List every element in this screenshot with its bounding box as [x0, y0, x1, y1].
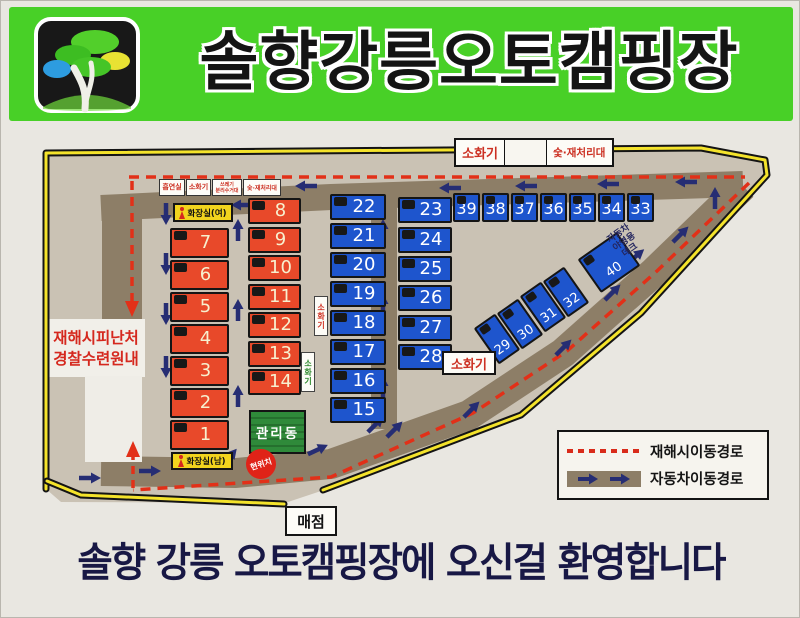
person-icon [178, 455, 184, 467]
map-canvas [1, 1, 800, 618]
arrow-right-icon [609, 473, 631, 485]
management-building: 관리동 [249, 410, 306, 454]
charcoal-disposal-label-small: 숯·재처리대 [243, 179, 281, 196]
legend-car-label: 자동차이동경로 [650, 468, 743, 489]
fire-extinguisher-label-top: 소화기 [456, 140, 505, 165]
fire-extinguisher-label-small: 소화기 [186, 179, 211, 196]
disaster-shelter-label: 재해시피난처 경찰수련원내 [47, 323, 145, 375]
evac-route-sample [567, 449, 641, 453]
blank-cell [505, 140, 545, 165]
recycling-label: 쓰레기 분리수거대 [212, 179, 242, 196]
female-toilet-label: 화장실(여) [173, 203, 233, 222]
camping-map-poster: { "header": { "title": "솔향강릉오토캠핑장" }, "w… [0, 0, 800, 618]
charcoal-disposal-label-top: 숯·재처리대 [546, 140, 612, 165]
legend-evacuation-row: 재해시이동경로 [567, 441, 759, 462]
male-toilet-label: 화장실(남) [171, 452, 233, 470]
fire-charcoal-sign-top: 소화기 숯·재처리대 [454, 138, 614, 167]
smoking-room-label: 흡연실 [159, 179, 185, 196]
arrow-right-icon [577, 473, 599, 485]
store-label: 매점 [285, 506, 337, 536]
car-route-sample [567, 471, 641, 487]
fire-extinguisher-label-right: 소화기 [442, 351, 496, 375]
welcome-message: 솔향 강릉 오토캠핑장에 오신걸 환영합니다 [23, 541, 779, 585]
legend-evacuation-label: 재해시이동경로 [650, 441, 743, 462]
legend-car-row: 자동차이동경로 [567, 468, 759, 489]
legend-box: 재해시이동경로 자동차이동경로 [557, 430, 769, 500]
person-icon [179, 207, 185, 219]
fire-extinguisher-label-vertical-2: 소화기 [301, 352, 315, 392]
fire-extinguisher-label-vertical-1: 소화기 [314, 296, 328, 336]
